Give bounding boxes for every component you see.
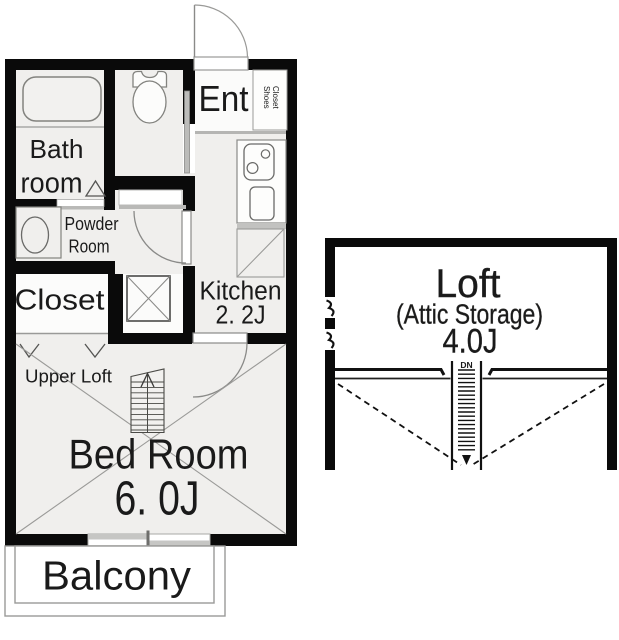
svg-text:Closet: Closet xyxy=(271,86,280,109)
svg-text:Balcony: Balcony xyxy=(42,553,191,599)
svg-text:Closet: Closet xyxy=(15,285,105,317)
svg-text:4.0J: 4.0J xyxy=(443,323,498,361)
svg-text:DN: DN xyxy=(460,360,472,370)
svg-text:Room: Room xyxy=(69,237,110,257)
svg-text:room: room xyxy=(21,168,83,200)
svg-text:Ent: Ent xyxy=(199,78,249,119)
svg-text:Upper Loft: Upper Loft xyxy=(25,367,112,387)
svg-text:Powder: Powder xyxy=(65,214,119,234)
svg-text:Shoes: Shoes xyxy=(262,86,271,109)
svg-text:6. 0J: 6. 0J xyxy=(115,473,200,526)
svg-text:2. 2J: 2. 2J xyxy=(216,302,266,330)
svg-text:Bath: Bath xyxy=(30,134,84,164)
svg-text:Bed Room: Bed Room xyxy=(69,431,249,478)
